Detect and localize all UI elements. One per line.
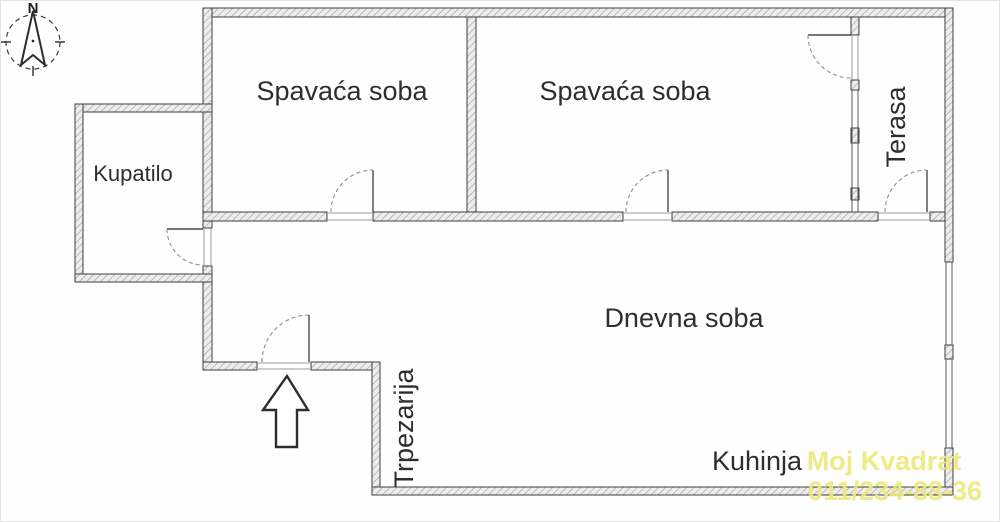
wall-terrace-left-top — [851, 17, 859, 35]
label-bedroom2: Spavaća soba — [539, 76, 711, 106]
watermark-brand: Moj Kvadrat — [807, 446, 962, 476]
compass-needle — [21, 11, 45, 65]
wall-bath-left — [75, 104, 83, 282]
door-entrance — [262, 315, 309, 362]
wall-right-upper — [945, 8, 953, 262]
wall-mid-c — [672, 212, 878, 221]
floor-plan-drawing: N Spavaća soba Spavaća soba Kupatilo Ter… — [0, 0, 1000, 522]
entrance-arrow-icon — [263, 376, 308, 447]
north-compass: N — [1, 0, 65, 76]
label-dining-room: Trpezarija — [389, 368, 419, 488]
wall-bath-bottom — [75, 274, 212, 282]
wall-mid-a — [203, 212, 327, 221]
label-bedroom1: Spavaća soba — [256, 76, 428, 106]
wall-bedroom-divider — [467, 17, 476, 212]
wall-top — [203, 8, 953, 17]
floor-plan-canvas: N Spavaća soba Spavaća soba Kupatilo Ter… — [0, 0, 1000, 522]
watermark-phone: 011/234-88-36 — [808, 476, 982, 506]
wall-left-upper — [203, 8, 212, 228]
compass-center-dot — [32, 40, 35, 43]
label-kitchen: Kuhinja — [712, 446, 803, 476]
label-bathroom: Kupatilo — [93, 161, 173, 186]
walls — [75, 8, 953, 495]
door-bedroom1 — [331, 170, 373, 212]
wall-step-left — [203, 362, 257, 370]
compass-north-label: N — [28, 0, 39, 17]
wall-mid-b — [373, 212, 623, 221]
wall-step-vertical — [372, 362, 380, 495]
wall-step-right — [311, 362, 380, 370]
door-terrace-south — [885, 170, 927, 212]
watermark: Moj Kvadrat 011/234-88-36 — [807, 446, 982, 506]
door-bedroom2 — [626, 170, 668, 212]
wall-right-pier — [945, 345, 953, 359]
door-bedroom2-terrace — [808, 35, 851, 78]
wall-bath-top — [75, 104, 212, 112]
label-terrace: Terasa — [881, 86, 911, 168]
door-bathroom — [167, 229, 203, 265]
label-living-room: Dnevna soba — [604, 303, 764, 333]
wall-terrace-left-stub — [851, 80, 859, 90]
room-labels: Spavaća soba Spavaća soba Kupatilo Teras… — [93, 76, 911, 488]
